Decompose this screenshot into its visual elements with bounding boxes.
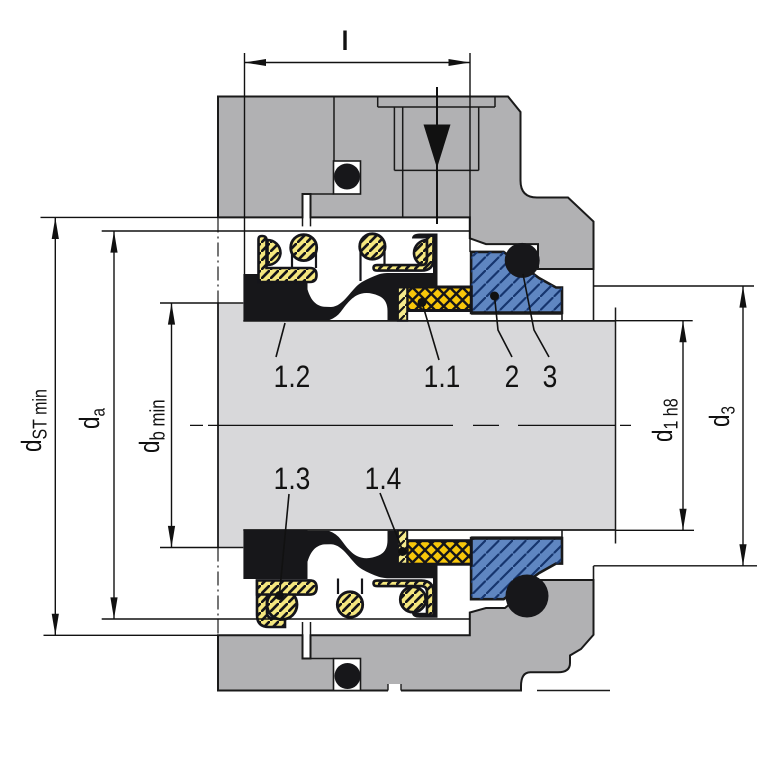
svg-text:d3: d3 (704, 406, 740, 427)
svg-text:1.2: 1.2 (274, 359, 311, 394)
svg-text:1.4: 1.4 (365, 461, 402, 496)
svg-text:1.3: 1.3 (274, 461, 311, 496)
svg-text:2: 2 (505, 359, 520, 394)
svg-text:1.1: 1.1 (424, 359, 461, 394)
svg-text:dST min: dST min (16, 389, 52, 452)
svg-text:da: da (74, 408, 110, 429)
svg-text:d1 h8: d1 h8 (647, 398, 683, 442)
svg-text:3: 3 (543, 359, 558, 394)
svg-text:db min: db min (134, 399, 170, 453)
